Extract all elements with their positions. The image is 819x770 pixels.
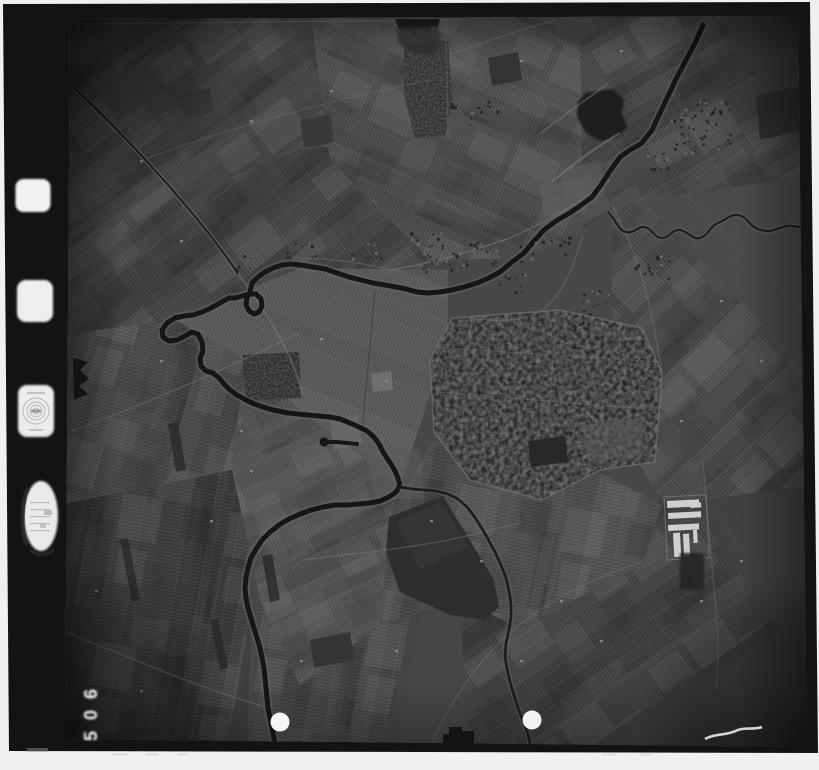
svg-text:506: 506 (81, 678, 101, 741)
